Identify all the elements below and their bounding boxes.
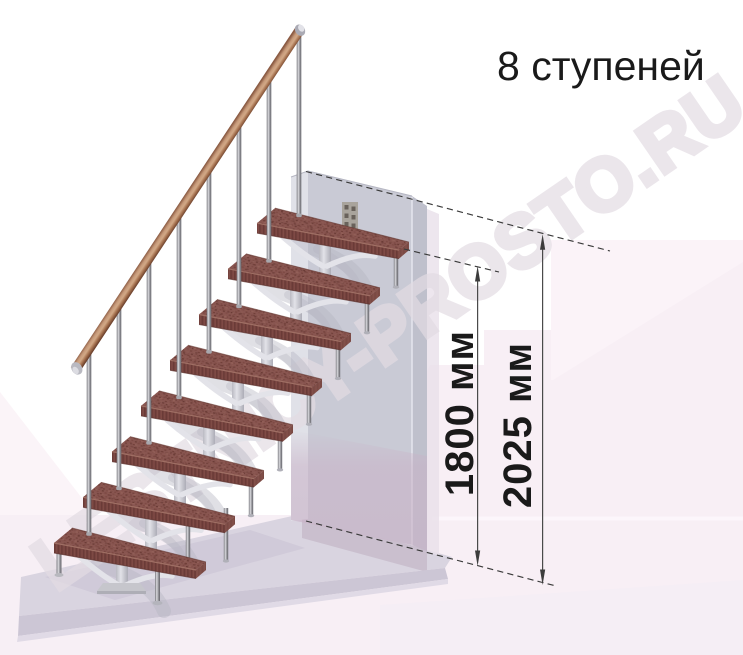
- svg-text:1800 мм: 1800 мм: [438, 330, 482, 496]
- svg-text:2025 мм: 2025 мм: [496, 342, 540, 508]
- svg-text:8 ступеней: 8 ступеней: [497, 43, 705, 89]
